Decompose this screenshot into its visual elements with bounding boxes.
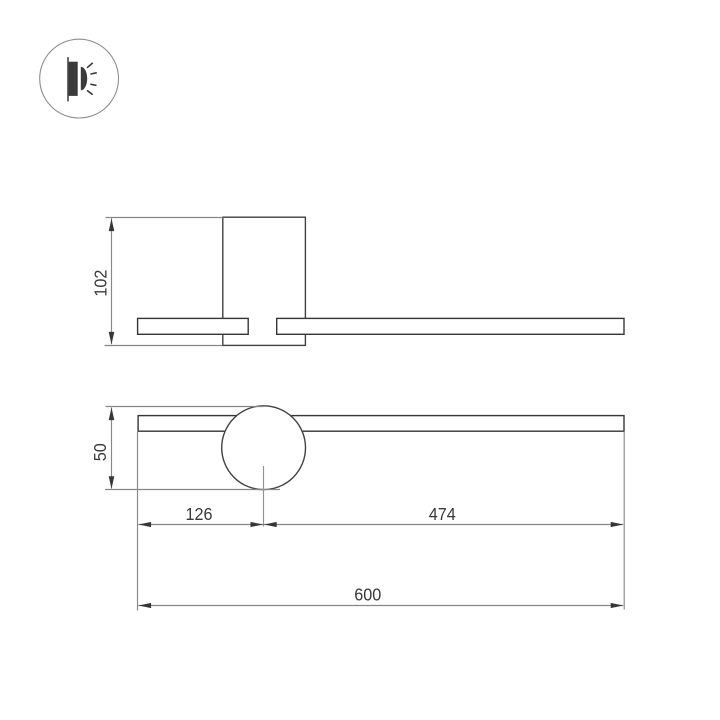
svg-text:102: 102 [91, 270, 111, 297]
svg-text:474: 474 [429, 504, 456, 524]
svg-text:50: 50 [90, 443, 110, 461]
svg-text:126: 126 [185, 504, 212, 524]
svg-text:600: 600 [354, 585, 381, 605]
